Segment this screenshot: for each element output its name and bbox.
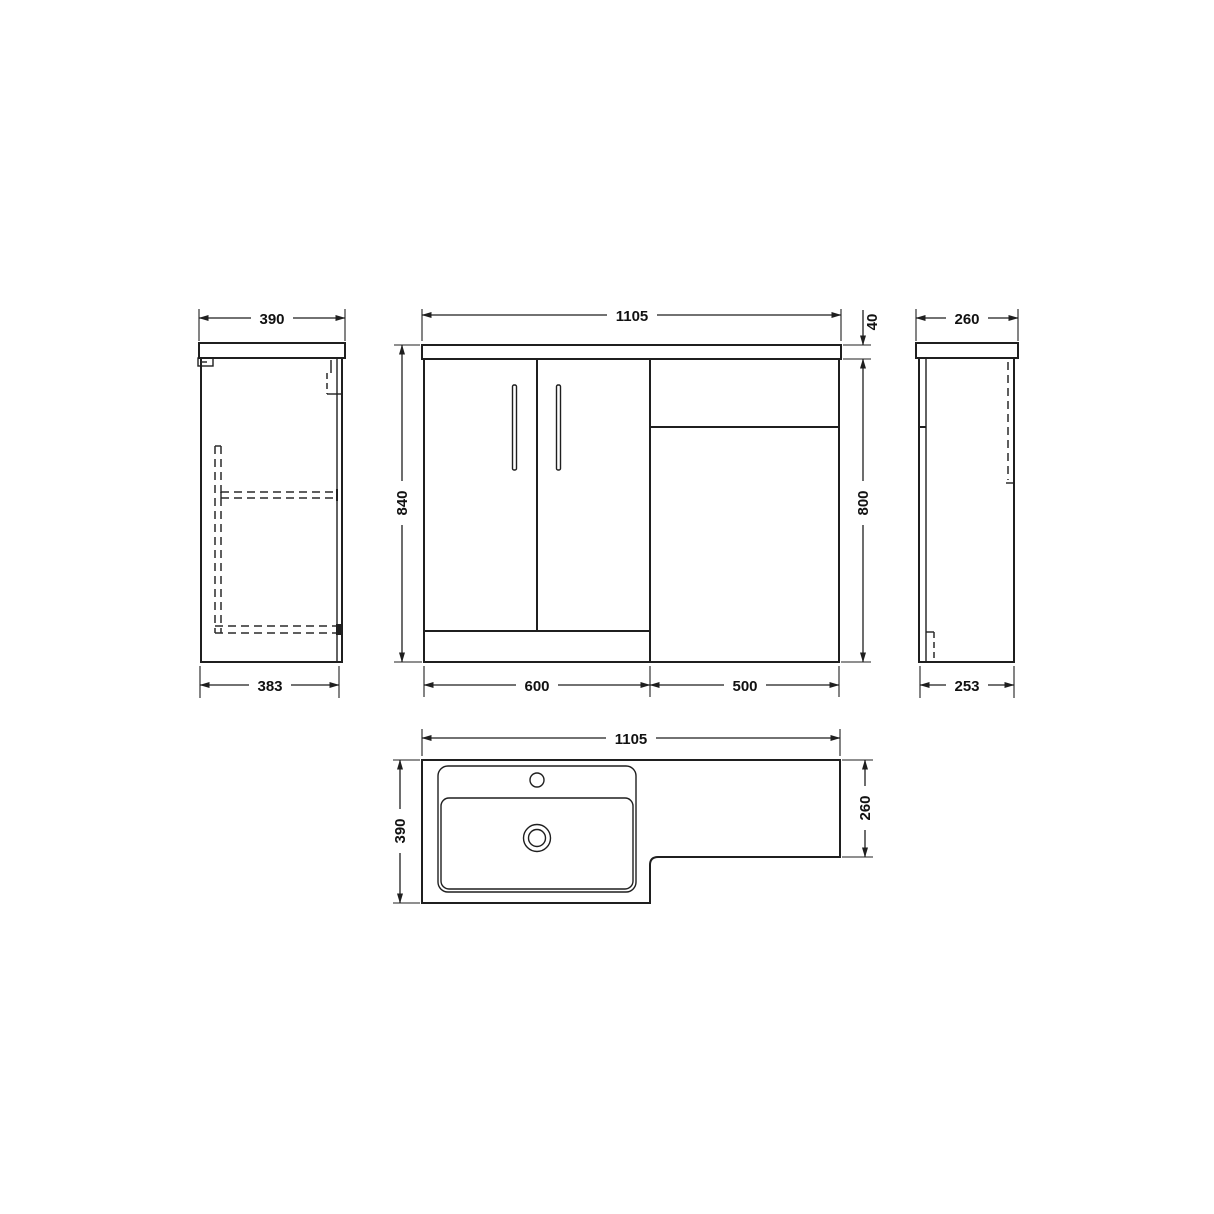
dim-plan-wc-depth: 260 <box>842 760 874 857</box>
dim-label-260-plan: 260 <box>857 795 874 820</box>
plan-view: 1105 390 260 <box>392 729 874 903</box>
dim-label-800: 800 <box>855 490 872 515</box>
dim-left-view-bottom-width: 383 <box>200 666 339 698</box>
dim-front-worktop-thickness: 40 <box>843 310 881 359</box>
worktop-plan-outline <box>422 760 840 903</box>
dim-right-view-bottom-depth: 253 <box>920 666 1014 698</box>
dim-front-wc-width: 500 <box>650 677 839 695</box>
worktop-profile <box>199 343 345 358</box>
wc-body-profile <box>919 358 1014 662</box>
dim-front-unit-height: 800 <box>841 359 872 662</box>
dim-front-width: 1105 <box>422 307 841 341</box>
dim-label-1105-front: 1105 <box>616 308 649 325</box>
front-view: 1105 840 40 <box>394 307 881 697</box>
dim-right-view-top-depth: 260 <box>916 309 1018 341</box>
unit-body-front <box>424 359 839 662</box>
drawing-svg: 390 <box>0 0 1214 1214</box>
cabinet-body-profile <box>201 358 342 662</box>
dim-label-390-top: 390 <box>259 311 284 328</box>
left-side-view: 390 <box>198 309 345 698</box>
worktop-front <box>422 345 841 359</box>
dim-front-vanity-width: 600 <box>424 666 839 697</box>
dim-label-840: 840 <box>394 490 411 515</box>
dim-label-600: 600 <box>524 678 549 695</box>
dim-plan-width: 1105 <box>422 729 840 756</box>
dim-label-260-side: 260 <box>954 311 979 328</box>
dim-left-view-top-width: 390 <box>199 309 345 341</box>
dim-label-253: 253 <box>954 678 979 695</box>
dim-front-total-height: 840 <box>394 345 422 662</box>
dim-label-383: 383 <box>257 678 282 695</box>
dim-label-500: 500 <box>732 678 757 695</box>
worktop-profile-right <box>916 343 1018 358</box>
right-side-view: 260 253 <box>916 309 1018 698</box>
dim-label-40: 40 <box>864 314 881 331</box>
technical-drawing: 390 <box>0 0 1214 1214</box>
dim-label-1105-plan: 1105 <box>615 731 648 748</box>
dim-plan-basin-depth: 390 <box>392 760 420 903</box>
dim-label-390-plan: 390 <box>392 818 409 843</box>
